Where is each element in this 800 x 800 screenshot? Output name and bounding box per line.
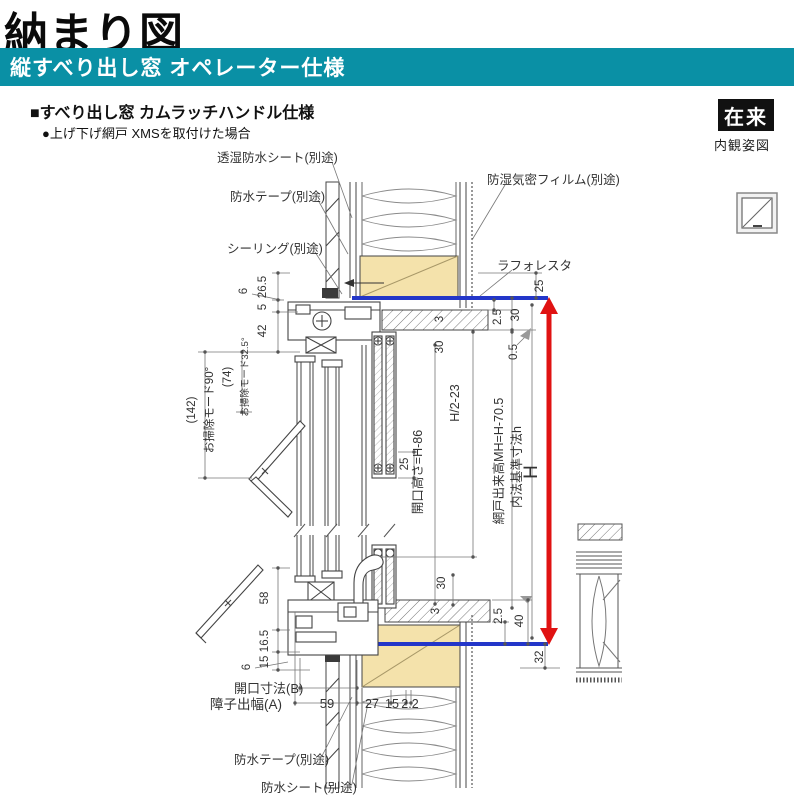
dim-2-5-top: 2.5 (492, 309, 504, 325)
dim-25-trim: 25 (534, 280, 546, 293)
dim-opening-b: 開口寸法(B) (234, 681, 303, 696)
dim-0-5: 0.5 (508, 344, 520, 360)
dim-screen-height: 網戸出来高MH=H-70.5 (491, 398, 506, 525)
spec-heading: ■すべり出し窓 カムラッチハンドル仕様 (30, 99, 314, 123)
label-sealing: シーリング(別途) (227, 241, 323, 256)
dim-25-screen: 25 (399, 458, 411, 471)
dim-opening-height: 開口高さ=H-86 (410, 430, 425, 514)
dim-mode90: お掃除モード90° (202, 367, 216, 453)
label-film: 防湿気密フィルム(別途) (487, 172, 620, 187)
dim-H: H (521, 465, 542, 479)
main-drawing: 透湿防水シート(別途) 防水テープ(別途) シーリング(別途) 防湿気密フィルム… (0, 140, 800, 800)
dim-15-bottom: 15 (385, 697, 399, 711)
label-tape-top: 防水テープ(別途) (230, 189, 325, 204)
dim-58: 58 (259, 592, 271, 605)
dim-h2-23: H/2-23 (448, 384, 462, 422)
dim-3-top: 3 (434, 316, 446, 322)
label-laforesta: ラフォレスタ (497, 259, 572, 273)
dim-30-right-top: 30 (510, 309, 522, 322)
section-banner: 縦すべり出し窓 オペレーター仕様 (0, 48, 794, 86)
side-wall-detail (576, 524, 622, 680)
dim-sash-a: 障子出幅(A) (210, 697, 282, 712)
dim-32: 32 (534, 651, 546, 664)
dim-74: (74) (222, 367, 234, 388)
dim-2-2: 2.2 (401, 697, 418, 711)
label-sheet-top: 透湿防水シート(別途) (217, 150, 338, 165)
dim-16-5: 16.5 (259, 630, 271, 652)
dim-3-bottom: 3 (430, 608, 442, 614)
page: 納まり図 縦すべり出し窓 オペレーター仕様 ■すべり出し窓 カムラッチハンドル仕… (0, 0, 800, 800)
dim-6-bottom: 6 (241, 664, 253, 670)
label-sheet-bottom: 防水シート(別途) (261, 780, 357, 795)
dim-30-bottom: 30 (436, 577, 448, 590)
dim-27: 27 (365, 697, 379, 711)
label-tape-bottom: 防水テープ(別途) (234, 752, 329, 767)
dim-26-5: 26.5 (257, 276, 269, 298)
construction-method-badge: 在来 (718, 99, 774, 131)
dim-142: (142) (186, 396, 198, 423)
window-symbol-icon (737, 193, 777, 233)
section-banner-label: 縦すべり出し窓 オペレーター仕様 (0, 52, 345, 82)
dim-59: 59 (320, 696, 334, 711)
dim-42: 42 (257, 325, 269, 338)
dim-15-left: 15 (259, 656, 271, 669)
height-arrow (540, 297, 558, 645)
dim-mode32: お掃除モード32.5° (239, 337, 251, 416)
dim-30-top: 30 (434, 341, 446, 354)
dim-2-5-bottom: 2.5 (493, 608, 505, 624)
dim-6-top: 6 (238, 288, 250, 294)
window-frame (196, 279, 402, 662)
dim-5: 5 (257, 304, 269, 310)
dim-40: 40 (514, 615, 526, 628)
wall-section (326, 182, 472, 788)
